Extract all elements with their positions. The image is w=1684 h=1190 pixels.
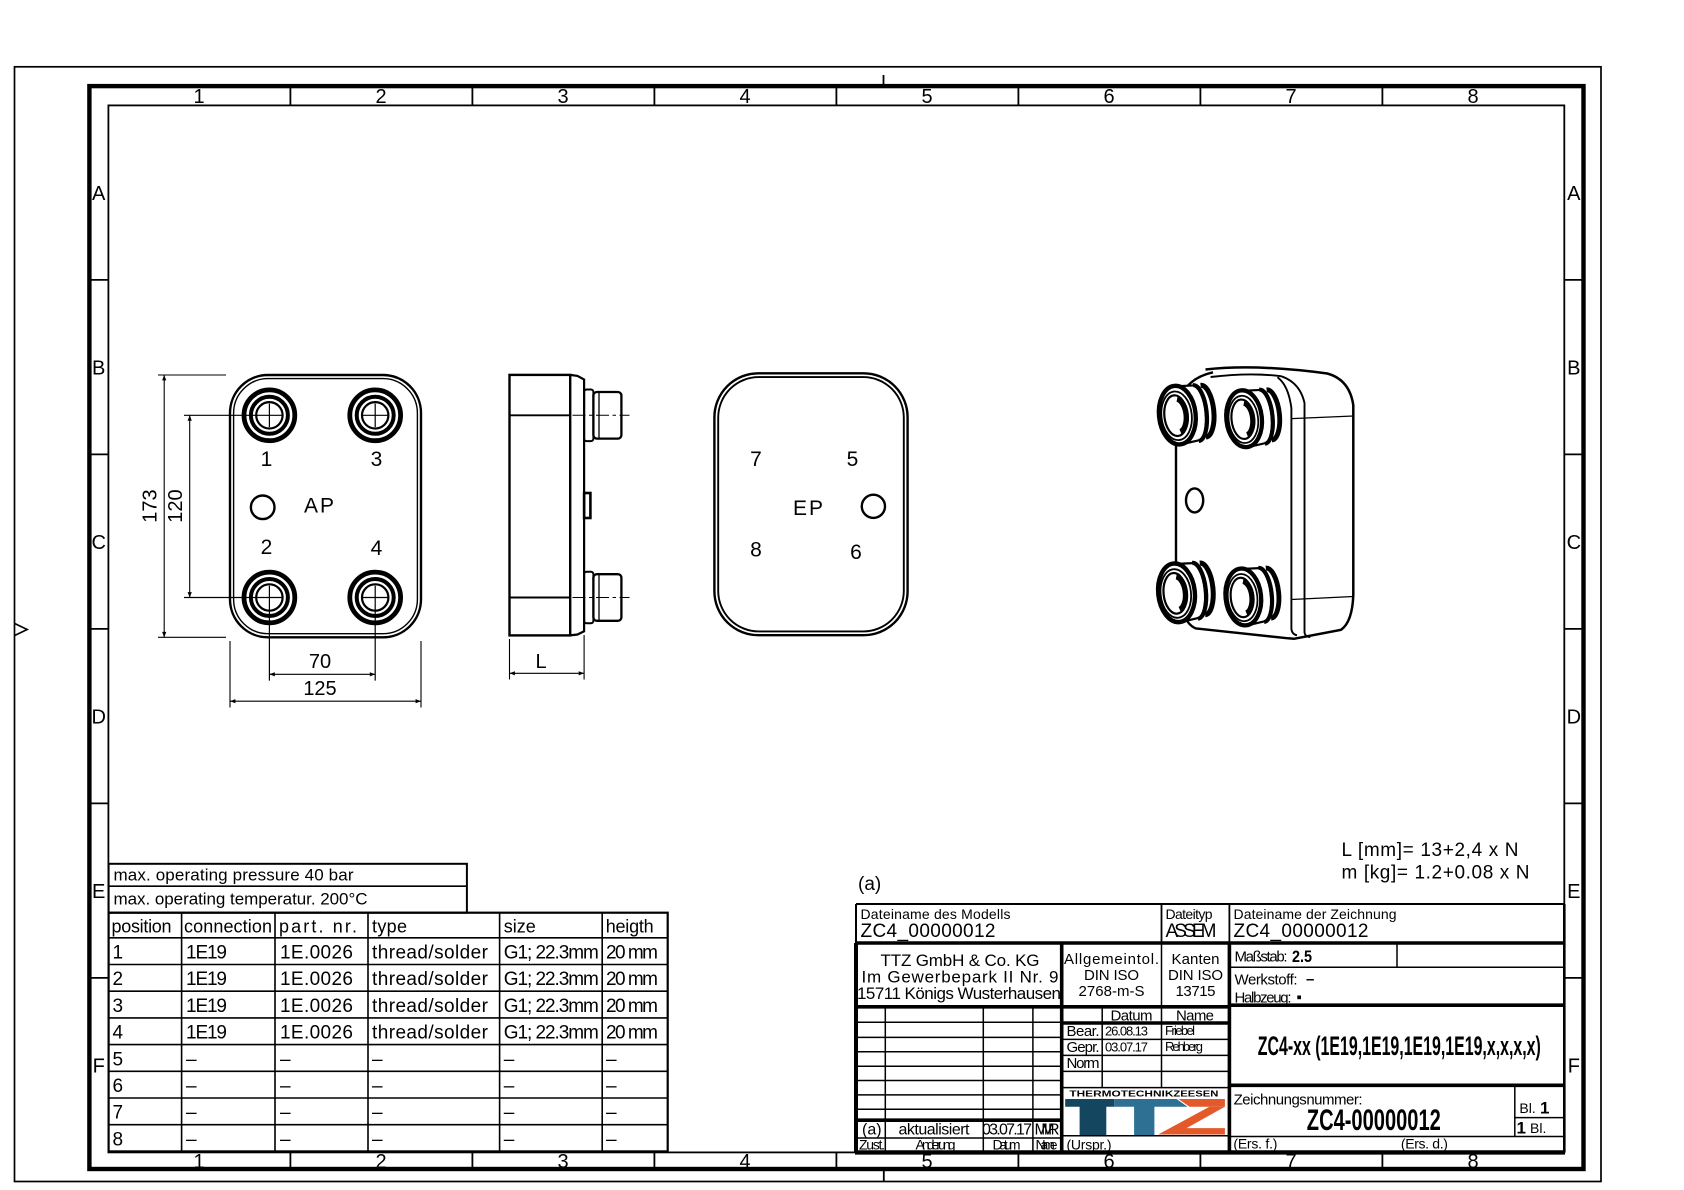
- svg-text:1E.0026: 1E.0026: [280, 996, 353, 1017]
- svg-text:–: –: [504, 1076, 515, 1097]
- svg-text:6: 6: [1103, 86, 1114, 108]
- svg-text:–: –: [606, 1049, 617, 1070]
- svg-text:15711 Königs Wusterhausen: 15711 Königs Wusterhausen: [857, 984, 1061, 1003]
- svg-text:6: 6: [850, 541, 862, 564]
- svg-text:7: 7: [113, 1103, 124, 1124]
- svg-text:A: A: [1567, 183, 1581, 205]
- svg-text:E: E: [92, 881, 105, 903]
- svg-text:AP: AP: [304, 495, 336, 518]
- svg-text:Kanten: Kanten: [1172, 951, 1220, 968]
- svg-text:m [kg]= 1.2+0.08 x N: m [kg]= 1.2+0.08 x N: [1342, 863, 1530, 884]
- svg-text:G1; 22.3mm: G1; 22.3mm: [504, 943, 599, 964]
- svg-text:Rehberg: Rehberg: [1165, 1039, 1203, 1054]
- svg-text:–: –: [280, 1129, 291, 1150]
- svg-text:1: 1: [1540, 1099, 1549, 1118]
- svg-text:8: 8: [1467, 86, 1478, 108]
- svg-text:G1; 22.3mm: G1; 22.3mm: [504, 1023, 599, 1044]
- svg-text:–: –: [504, 1049, 515, 1070]
- svg-text:connection: connection: [184, 917, 272, 937]
- svg-text:max. operating temperatur. 200: max. operating temperatur. 200°C: [114, 890, 368, 909]
- svg-text:70: 70: [309, 651, 331, 673]
- svg-text:–: –: [1306, 971, 1314, 988]
- svg-text:Bl.: Bl.: [1519, 1100, 1535, 1116]
- svg-text:thread/solder: thread/solder: [372, 969, 489, 990]
- svg-text:1: 1: [1517, 1119, 1526, 1138]
- svg-text:D: D: [91, 707, 105, 729]
- svg-text:Bl.: Bl.: [1530, 1120, 1546, 1136]
- svg-text:Werkstoff:: Werkstoff:: [1235, 972, 1298, 989]
- svg-text:thread/solder: thread/solder: [372, 943, 489, 964]
- svg-text:3: 3: [557, 1151, 568, 1173]
- svg-text:20 mm: 20 mm: [606, 943, 658, 964]
- svg-text:–: –: [186, 1049, 197, 1070]
- svg-text:Name: Name: [1176, 1008, 1214, 1025]
- svg-text:Friebel: Friebel: [1165, 1023, 1195, 1038]
- svg-text:2768-m-S: 2768-m-S: [1079, 983, 1145, 1000]
- svg-text:max. operating pressure 40 bar: max. operating pressure 40 bar: [114, 866, 354, 885]
- svg-text:ZC4_00000012: ZC4_00000012: [861, 921, 996, 942]
- svg-text:L [mm]= 13+2,4 x N: L [mm]= 13+2,4 x N: [1342, 840, 1519, 861]
- svg-text:–: –: [606, 1076, 617, 1097]
- svg-text:E: E: [1567, 881, 1580, 903]
- svg-text:–: –: [504, 1129, 515, 1150]
- svg-text:–: –: [280, 1076, 291, 1097]
- svg-text:thread/solder: thread/solder: [372, 1023, 489, 1044]
- svg-text:Dateityp: Dateityp: [1166, 906, 1213, 922]
- svg-text:(Urspr.): (Urspr.): [1067, 1137, 1112, 1153]
- svg-text:3: 3: [371, 448, 383, 471]
- svg-text:–: –: [186, 1076, 197, 1097]
- svg-text:5: 5: [921, 86, 932, 108]
- svg-text:26.08.13: 26.08.13: [1105, 1024, 1148, 1039]
- svg-text:G1; 22.3mm: G1; 22.3mm: [504, 996, 599, 1017]
- svg-text:1E.0026: 1E.0026: [280, 969, 353, 990]
- svg-text:–: –: [372, 1129, 383, 1150]
- svg-text:Gepr.: Gepr.: [1067, 1039, 1100, 1056]
- svg-text:03.07.17: 03.07.17: [1105, 1040, 1148, 1055]
- svg-text:–: –: [372, 1103, 383, 1124]
- svg-text:THERMOTECHNIK: THERMOTECHNIK: [1069, 1088, 1174, 1098]
- svg-text:2: 2: [113, 969, 124, 990]
- svg-text:20 mm: 20 mm: [606, 969, 658, 990]
- svg-text:20 mm: 20 mm: [606, 1023, 658, 1044]
- svg-text:–: –: [606, 1103, 617, 1124]
- svg-text:2.5: 2.5: [1292, 947, 1312, 966]
- svg-text:4: 4: [371, 537, 383, 560]
- svg-text:thread/solder: thread/solder: [372, 996, 489, 1017]
- svg-text:B: B: [1567, 358, 1580, 380]
- svg-text:3: 3: [113, 996, 124, 1017]
- svg-text:125: 125: [303, 678, 336, 700]
- svg-text:F: F: [1568, 1056, 1580, 1078]
- svg-text:1: 1: [193, 86, 204, 108]
- svg-text:part. nr.: part. nr.: [279, 917, 357, 937]
- svg-text:Dateiname der Zeichnung: Dateiname der Zeichnung: [1234, 906, 1397, 922]
- svg-text:–: –: [372, 1076, 383, 1097]
- svg-text:Dateiname des Modells: Dateiname des Modells: [861, 906, 1011, 922]
- svg-text:–: –: [186, 1129, 197, 1150]
- svg-text:ZC4-xx (1E19,1E19,1E19,1E19,x: ZC4-xx (1E19,1E19,1E19,1E19,x,x,x,x): [1258, 1031, 1541, 1061]
- svg-text:–: –: [186, 1103, 197, 1124]
- svg-text:G1; 22.3mm: G1; 22.3mm: [504, 969, 599, 990]
- svg-text:Halbzeug:: Halbzeug:: [1235, 990, 1292, 1007]
- svg-text:7: 7: [1285, 86, 1296, 108]
- svg-text:ASSEM: ASSEM: [1166, 921, 1217, 942]
- svg-text:20 mm: 20 mm: [606, 996, 658, 1017]
- svg-text:Norm: Norm: [1067, 1055, 1100, 1072]
- svg-text:(a): (a): [858, 874, 881, 895]
- svg-text:F: F: [93, 1056, 105, 1078]
- svg-text:DIN ISO: DIN ISO: [1168, 967, 1223, 984]
- svg-text:L: L: [535, 651, 546, 673]
- svg-text:ZC4-00000012: ZC4-00000012: [1307, 1104, 1441, 1137]
- svg-text:–: –: [280, 1049, 291, 1070]
- svg-text:type: type: [372, 917, 407, 937]
- svg-text:1E.0026: 1E.0026: [280, 943, 353, 964]
- svg-text:5: 5: [847, 448, 859, 471]
- svg-text:1E19: 1E19: [186, 1023, 227, 1044]
- svg-text:3: 3: [557, 86, 568, 108]
- svg-text:1: 1: [193, 1151, 204, 1173]
- svg-text:6: 6: [113, 1076, 124, 1097]
- svg-text:B: B: [92, 358, 105, 380]
- svg-text:heigth: heigth: [606, 917, 654, 937]
- svg-text:1: 1: [261, 448, 273, 471]
- svg-text:2: 2: [261, 536, 273, 559]
- svg-text:4: 4: [739, 86, 750, 108]
- svg-text:1E19: 1E19: [186, 969, 227, 990]
- svg-text:▪: ▪: [1297, 989, 1302, 1006]
- svg-text:1E.0026: 1E.0026: [280, 1023, 353, 1044]
- svg-text:4: 4: [739, 1151, 750, 1173]
- svg-text:EP: EP: [793, 497, 825, 520]
- svg-text:7: 7: [750, 448, 762, 471]
- svg-text:Datum: Datum: [1111, 1008, 1153, 1025]
- svg-text:1E19: 1E19: [186, 996, 227, 1017]
- svg-text:ZEESEN: ZEESEN: [1173, 1088, 1218, 1098]
- svg-text:8: 8: [750, 539, 762, 562]
- svg-text:173: 173: [140, 489, 162, 522]
- svg-text:C: C: [91, 532, 105, 554]
- svg-text:4: 4: [113, 1023, 124, 1044]
- svg-text:Maßstab:: Maßstab:: [1235, 949, 1288, 966]
- svg-text:A: A: [92, 183, 106, 205]
- svg-text:–: –: [606, 1129, 617, 1150]
- svg-text:8: 8: [113, 1129, 124, 1150]
- svg-text:–: –: [280, 1103, 291, 1124]
- svg-text:ZC4_00000012: ZC4_00000012: [1234, 921, 1369, 942]
- svg-text:position: position: [112, 917, 172, 937]
- svg-text:Allgemeintol.: Allgemeintol.: [1064, 951, 1159, 968]
- svg-text:–: –: [372, 1049, 383, 1070]
- svg-text:DIN ISO: DIN ISO: [1084, 967, 1139, 984]
- svg-text:1E19: 1E19: [186, 943, 227, 964]
- svg-text:–: –: [504, 1103, 515, 1124]
- svg-text:(Ers. f.): (Ers. f.): [1233, 1136, 1277, 1152]
- svg-text:(Ers. d.): (Ers. d.): [1401, 1136, 1448, 1152]
- svg-text:120: 120: [165, 489, 187, 522]
- svg-text:2: 2: [375, 86, 386, 108]
- svg-text:2: 2: [375, 1151, 386, 1173]
- svg-text:C: C: [1567, 532, 1581, 554]
- svg-text:Datum: Datum: [993, 1137, 1021, 1153]
- svg-text:D: D: [1567, 707, 1581, 729]
- svg-text:1: 1: [113, 943, 124, 964]
- svg-text:13715: 13715: [1176, 983, 1216, 1000]
- svg-text:5: 5: [113, 1049, 124, 1070]
- svg-text:Name: Name: [1036, 1137, 1058, 1153]
- svg-text:size: size: [504, 917, 536, 937]
- svg-text:Änderung: Änderung: [916, 1137, 956, 1153]
- svg-text:Zust.: Zust.: [859, 1137, 885, 1153]
- svg-text:Bear.: Bear.: [1067, 1023, 1100, 1040]
